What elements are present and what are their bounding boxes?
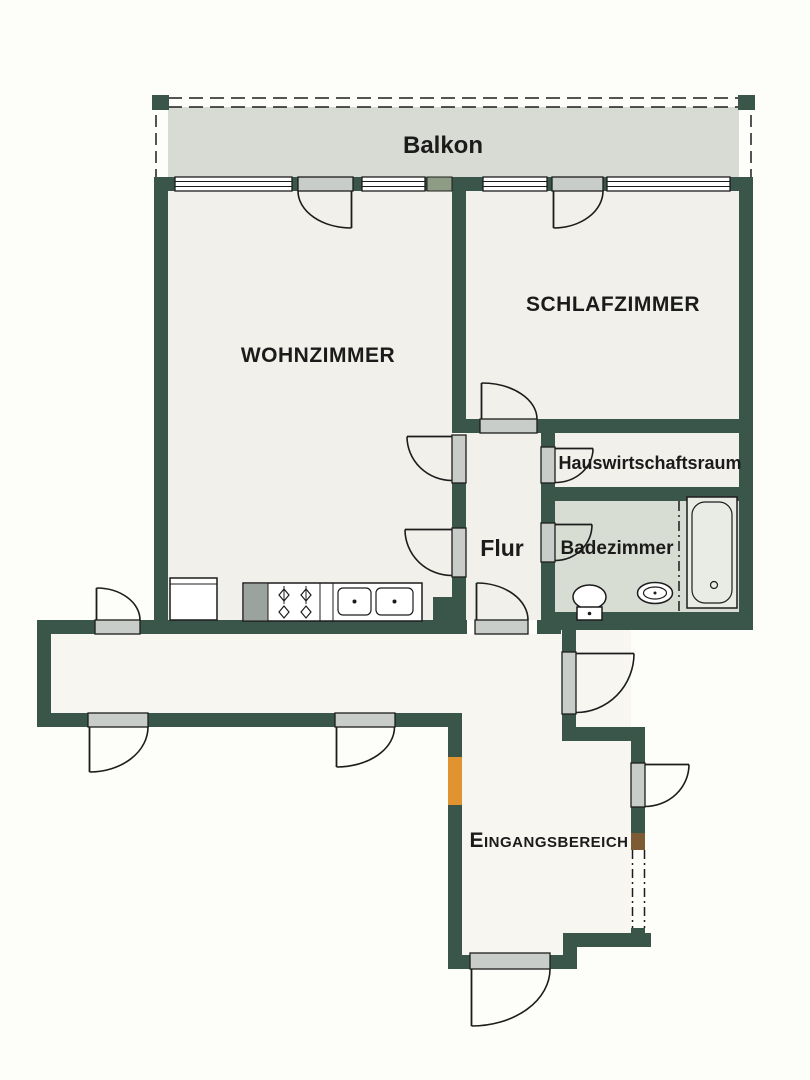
room-label-wohnzimmer: WOHNZIMMER xyxy=(241,344,395,367)
door-corridor-bottom-1 xyxy=(88,713,148,772)
toilet xyxy=(573,585,606,620)
window-wohnzimmer-left xyxy=(175,177,292,191)
wall-flur-right-top xyxy=(541,433,555,447)
balcony-post-top-left xyxy=(152,95,169,110)
wall-eingangsbereich-right-upper xyxy=(631,741,645,763)
window-schlafzimmer-left xyxy=(483,177,547,191)
door-eingangsbereich-right xyxy=(631,763,689,807)
corridor-floor xyxy=(51,634,562,713)
kitchen-counter-gray-block xyxy=(244,584,268,620)
wall-vestibule-upper xyxy=(562,630,576,652)
room-label-hauswirtschaftsraum: Hauswirtschaftsraum xyxy=(558,453,741,473)
balcony-post-top-right xyxy=(738,95,755,110)
bathtub xyxy=(687,497,737,608)
wall-eingangsbereich-left xyxy=(448,713,462,955)
windows xyxy=(175,177,730,191)
wall-vestibule-bottom xyxy=(562,727,645,741)
wall-flur-right-lower xyxy=(541,562,555,620)
wall-pier-olive xyxy=(427,177,452,191)
wall-segment-brown xyxy=(631,833,645,850)
wall-flur-left-mid xyxy=(452,483,466,528)
entrance-door xyxy=(470,953,550,1026)
room-label-balkon: Balkon xyxy=(403,132,483,159)
door-corridor-top xyxy=(95,588,140,634)
wall-eingangsbereich-right-mid xyxy=(631,807,645,833)
room-label-eingangsbereich: Eingangsbereich xyxy=(469,829,628,852)
wall-segment-orange xyxy=(448,757,462,805)
wall-outer-left xyxy=(154,177,168,634)
wall-outer-right xyxy=(739,177,753,630)
window-wohnzimmer-right xyxy=(362,177,425,191)
wall-corridor-left xyxy=(37,620,51,727)
door-corridor-bottom-2 xyxy=(335,713,395,767)
eingangsbereich-floor-step xyxy=(462,933,563,955)
wall-schlafzimmer-bottom-left xyxy=(452,419,480,433)
kitchen-area xyxy=(170,578,422,621)
wohnzimmer-floor xyxy=(168,191,452,620)
room-label-badezimmer: Badezimmer xyxy=(561,538,675,559)
window-schlafzimmer-right xyxy=(607,177,730,191)
wall-kitchen-pier xyxy=(433,597,452,620)
room-label-schlafzimmer: SCHLAFZIMMER xyxy=(526,293,700,316)
dashed-opening-right-wall xyxy=(633,850,645,928)
room-label-flur: Flur xyxy=(480,535,523,561)
washbasin xyxy=(638,583,673,604)
floor-plan-drawing: Balkon WOHNZIMMER SCHLAFZIMMER Hauswirts… xyxy=(0,0,810,1080)
wall-schlafzimmer-bottom-right xyxy=(537,419,753,433)
wall-wohnzimmer-schlafzimmer xyxy=(452,177,466,433)
floor-plan-page: Balkon WOHNZIMMER SCHLAFZIMMER Hauswirts… xyxy=(0,0,810,1080)
